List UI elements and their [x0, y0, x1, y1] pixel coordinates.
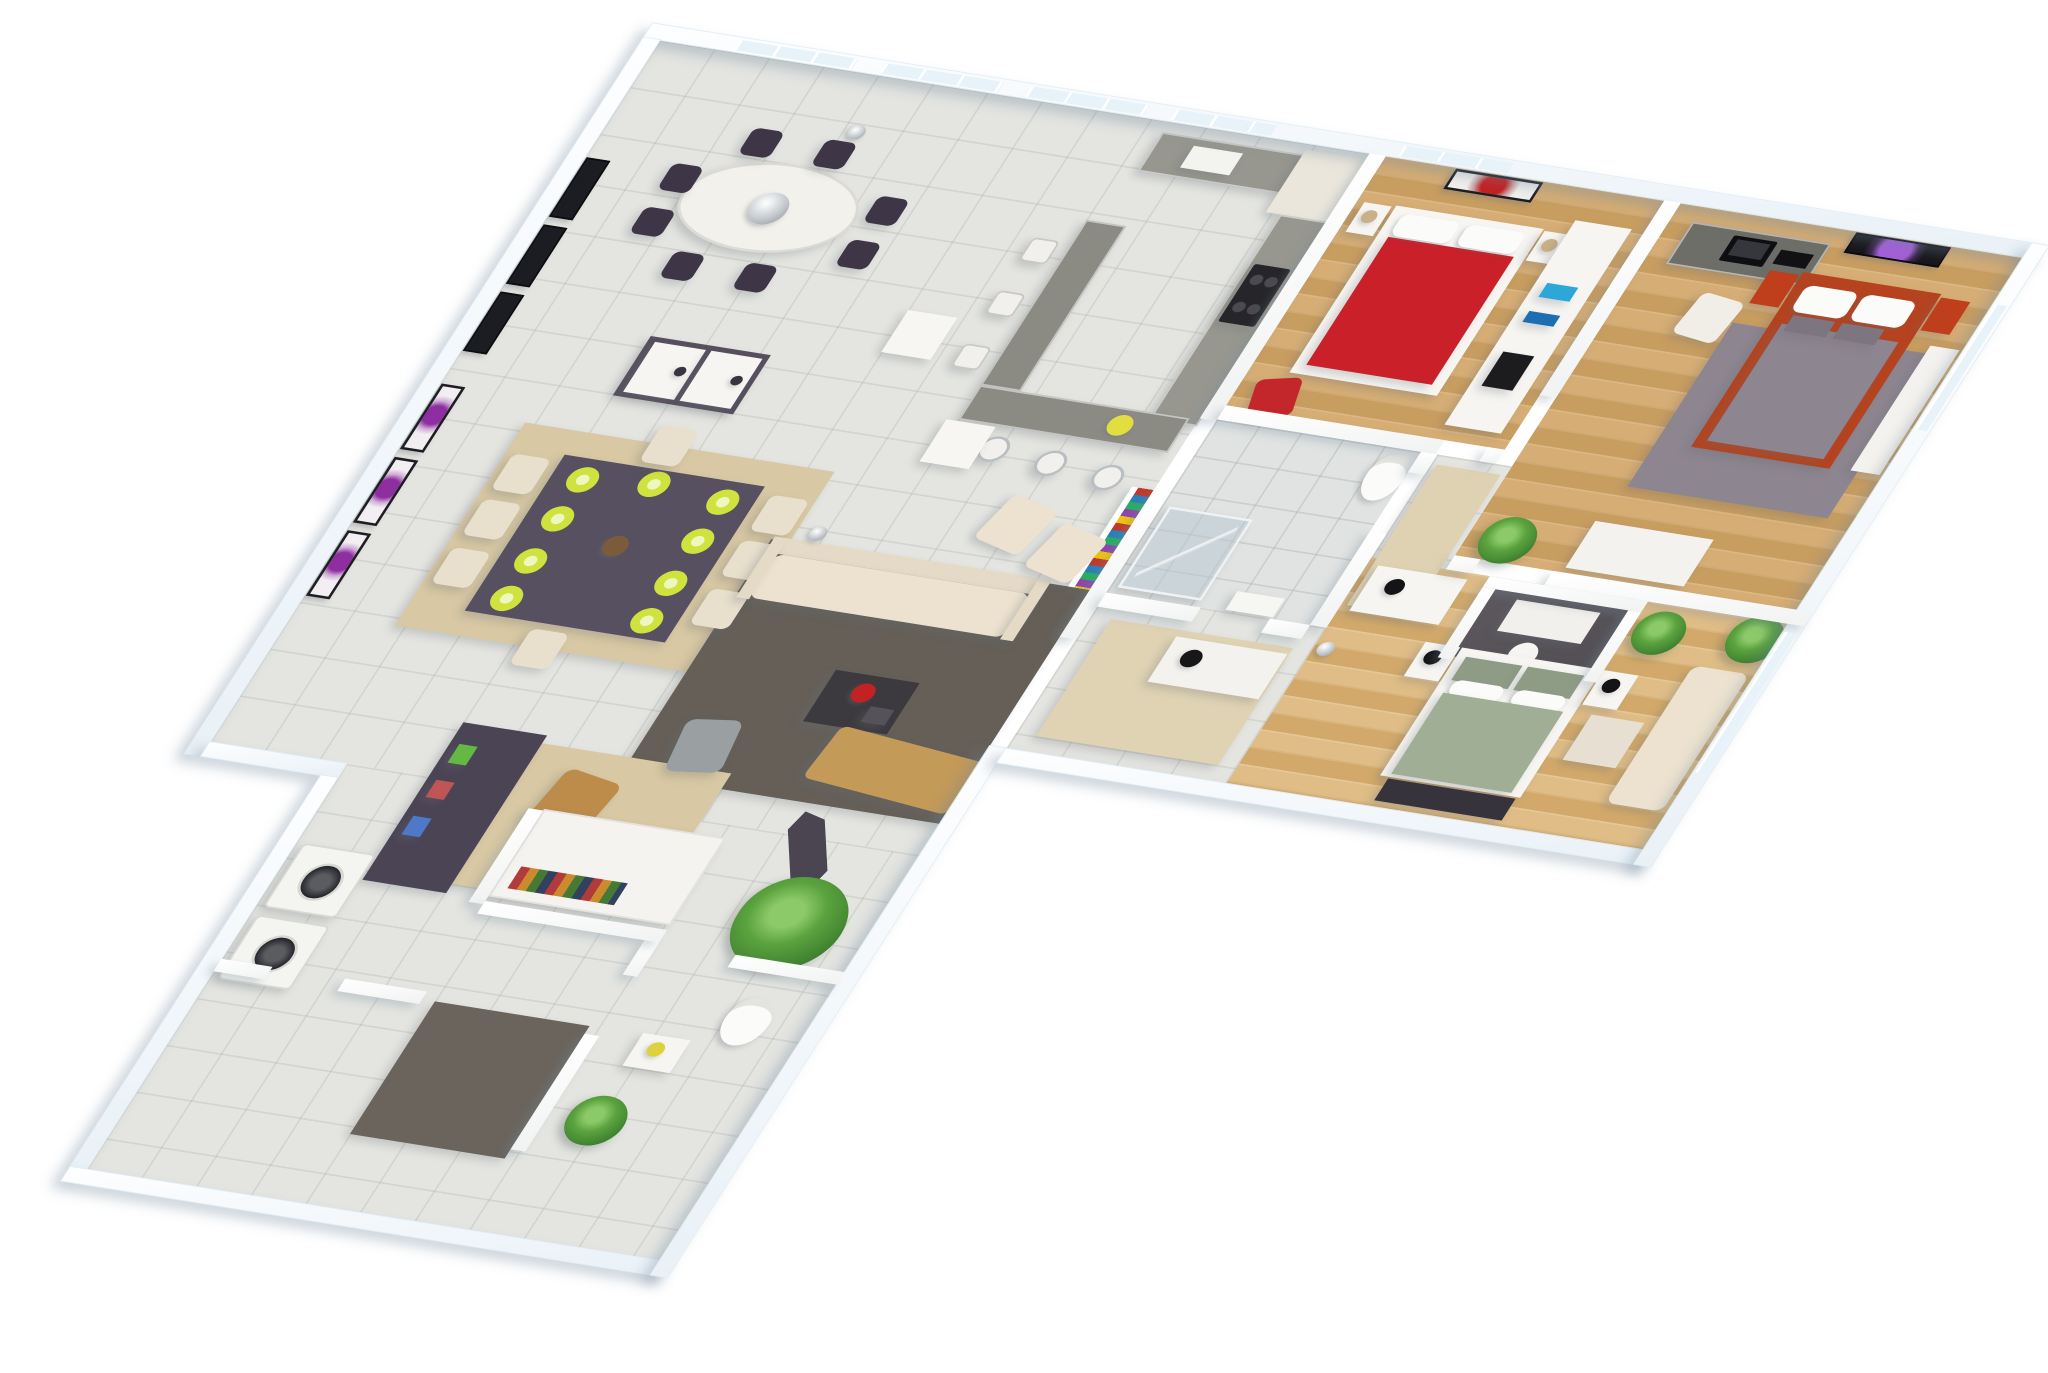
floor-plan-image	[0, 0, 2048, 1373]
floor-plan	[0, 40, 2048, 1373]
bedroom1-south-wall-end	[1479, 447, 1504, 464]
